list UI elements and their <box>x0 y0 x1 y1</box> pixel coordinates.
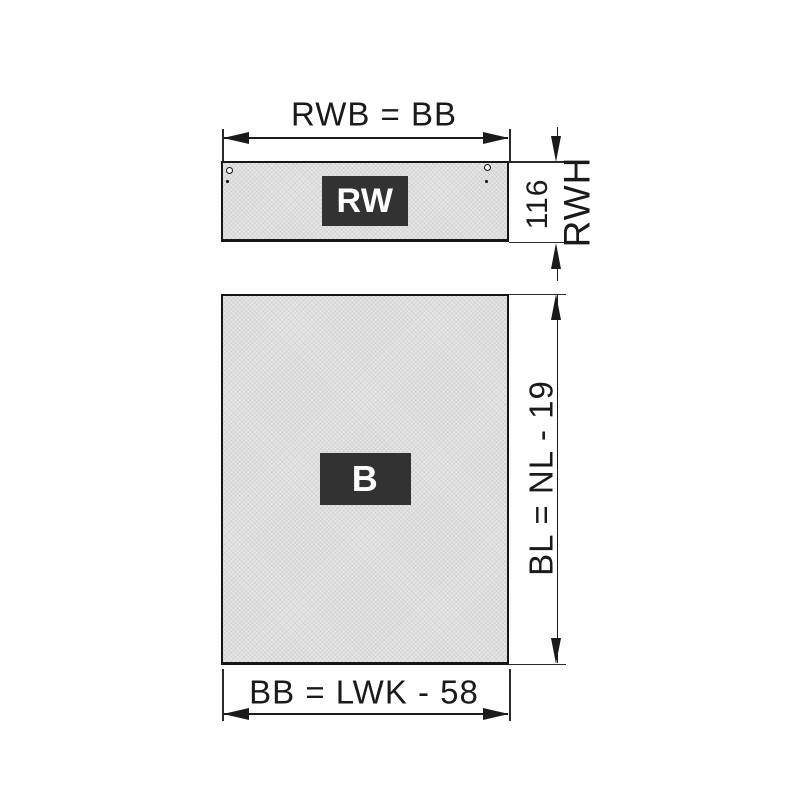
dim-label-bottom-width: BB = LWK - 58 <box>249 676 479 709</box>
dim-label-rw-height: RWH <box>559 157 596 248</box>
dimension-arrow-down-icon <box>551 638 561 664</box>
dim-line-rw-height <box>557 268 559 281</box>
dimension-arrow-left-icon <box>223 132 249 144</box>
dimension-arrow-up-icon <box>551 294 561 320</box>
rear-wall-panel: RW <box>221 161 509 242</box>
rear-wall-label-box: RW <box>322 176 408 226</box>
bottom-panel-label: B <box>352 458 379 500</box>
dimension-arrow-left-icon <box>223 708 249 720</box>
bottom-panel: B <box>221 294 509 665</box>
rear-wall-label: RW <box>336 182 393 221</box>
extension-line <box>509 669 511 721</box>
dim-label-bottom-length: BL = NL - 19 <box>525 380 558 576</box>
bottom-panel-label-box: B <box>320 453 411 505</box>
dimension-arrow-right-icon <box>483 132 509 144</box>
dim-label-top-width: RWB = BB <box>291 98 457 131</box>
screw-hole-icon <box>226 167 233 174</box>
dim-line-top-width <box>224 137 508 139</box>
pilot-hole-icon <box>226 180 229 183</box>
dimension-drawing: RWB = BB RW 116 RWH B BL = NL - 19 BB = … <box>0 0 800 800</box>
extension-line <box>509 129 511 161</box>
pilot-hole-icon <box>485 180 488 183</box>
screw-hole-icon <box>484 164 491 171</box>
dimension-arrow-right-icon <box>483 708 509 720</box>
dim-line-bottom-width <box>224 713 508 715</box>
dim-value-rw-height: 116 <box>523 179 553 230</box>
